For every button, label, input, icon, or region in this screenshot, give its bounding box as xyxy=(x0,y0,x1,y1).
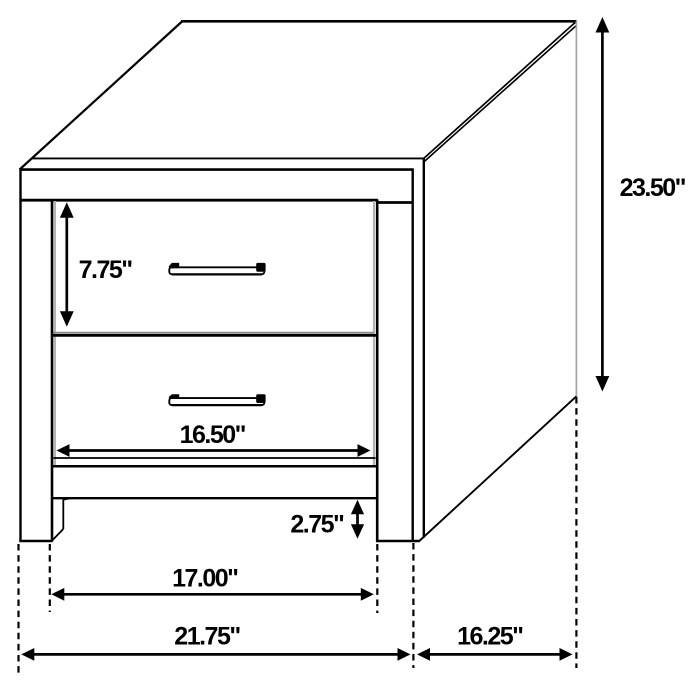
svg-text:16.50": 16.50" xyxy=(180,421,246,449)
svg-text:21.75": 21.75" xyxy=(174,622,240,650)
svg-text:2.75": 2.75" xyxy=(290,511,344,539)
svg-text:23.50": 23.50" xyxy=(620,174,686,202)
svg-text:7.75": 7.75" xyxy=(79,256,133,284)
svg-text:17.00": 17.00" xyxy=(172,565,238,593)
svg-text:16.25": 16.25" xyxy=(457,622,523,650)
